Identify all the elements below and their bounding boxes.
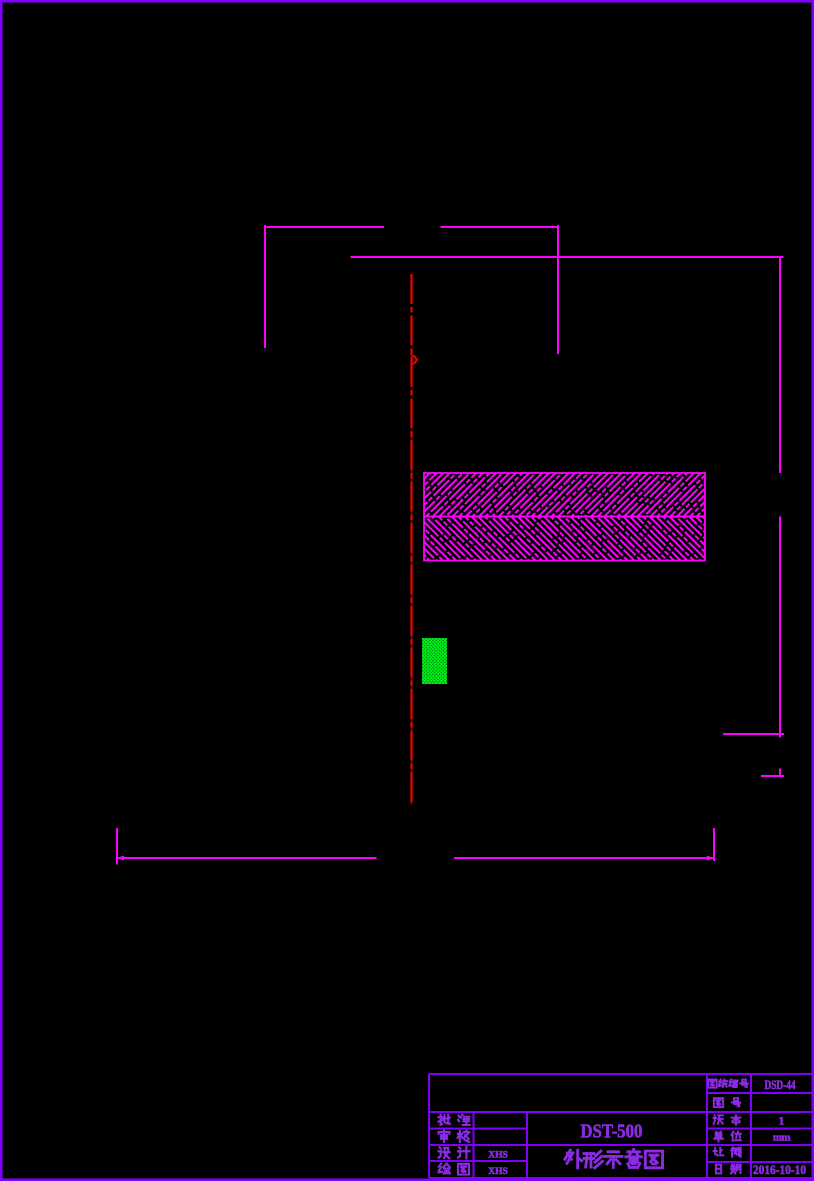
svg-text:mm: mm xyxy=(773,1131,791,1143)
svg-text:XHS: XHS xyxy=(488,1167,508,1177)
svg-text:2016-10-10: 2016-10-10 xyxy=(753,1163,806,1177)
svg-text:XHS: XHS xyxy=(488,1151,508,1161)
svg-text:DSD-44: DSD-44 xyxy=(765,1078,797,1092)
svg-text:1: 1 xyxy=(779,1113,785,1127)
svg-text:DST-500: DST-500 xyxy=(580,1121,642,1143)
